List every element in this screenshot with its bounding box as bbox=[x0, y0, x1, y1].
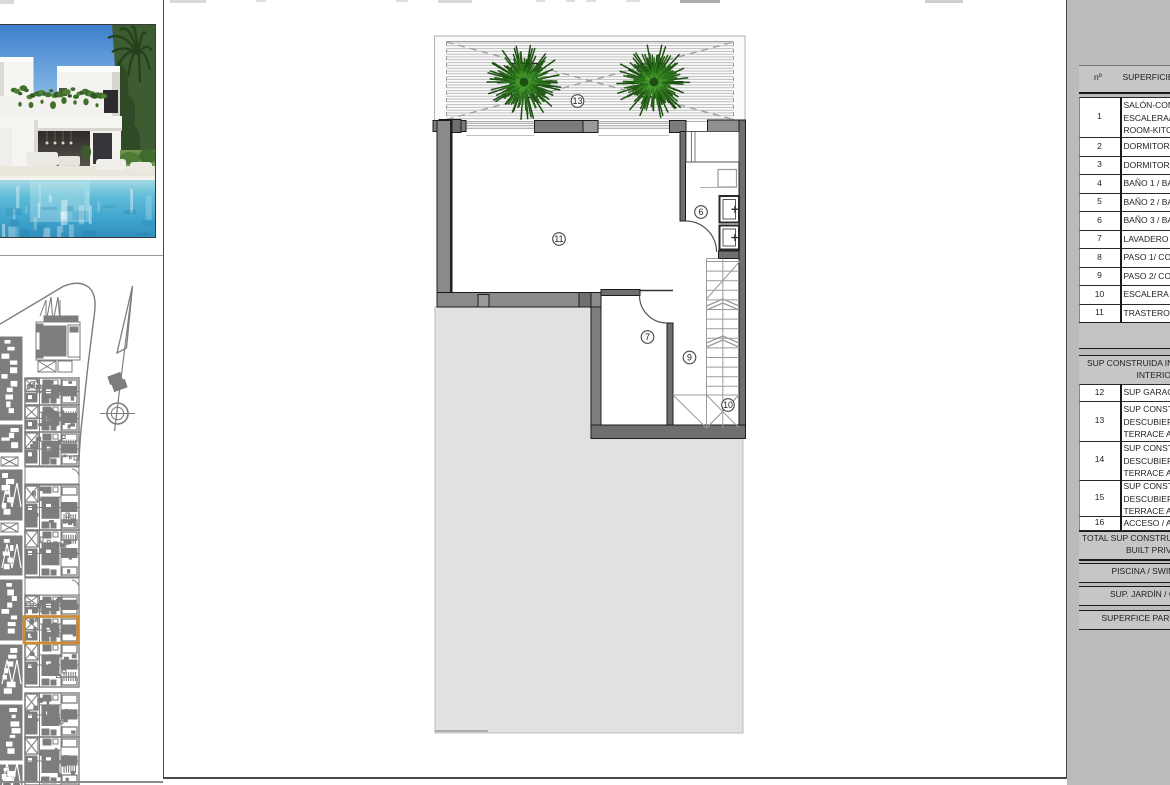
svg-text:10: 10 bbox=[723, 400, 733, 410]
svg-text:7: 7 bbox=[645, 332, 650, 342]
svg-text:11: 11 bbox=[554, 234, 563, 244]
svg-text:6: 6 bbox=[699, 207, 704, 217]
svg-text:9: 9 bbox=[687, 353, 692, 363]
svg-text:13: 13 bbox=[573, 96, 583, 106]
